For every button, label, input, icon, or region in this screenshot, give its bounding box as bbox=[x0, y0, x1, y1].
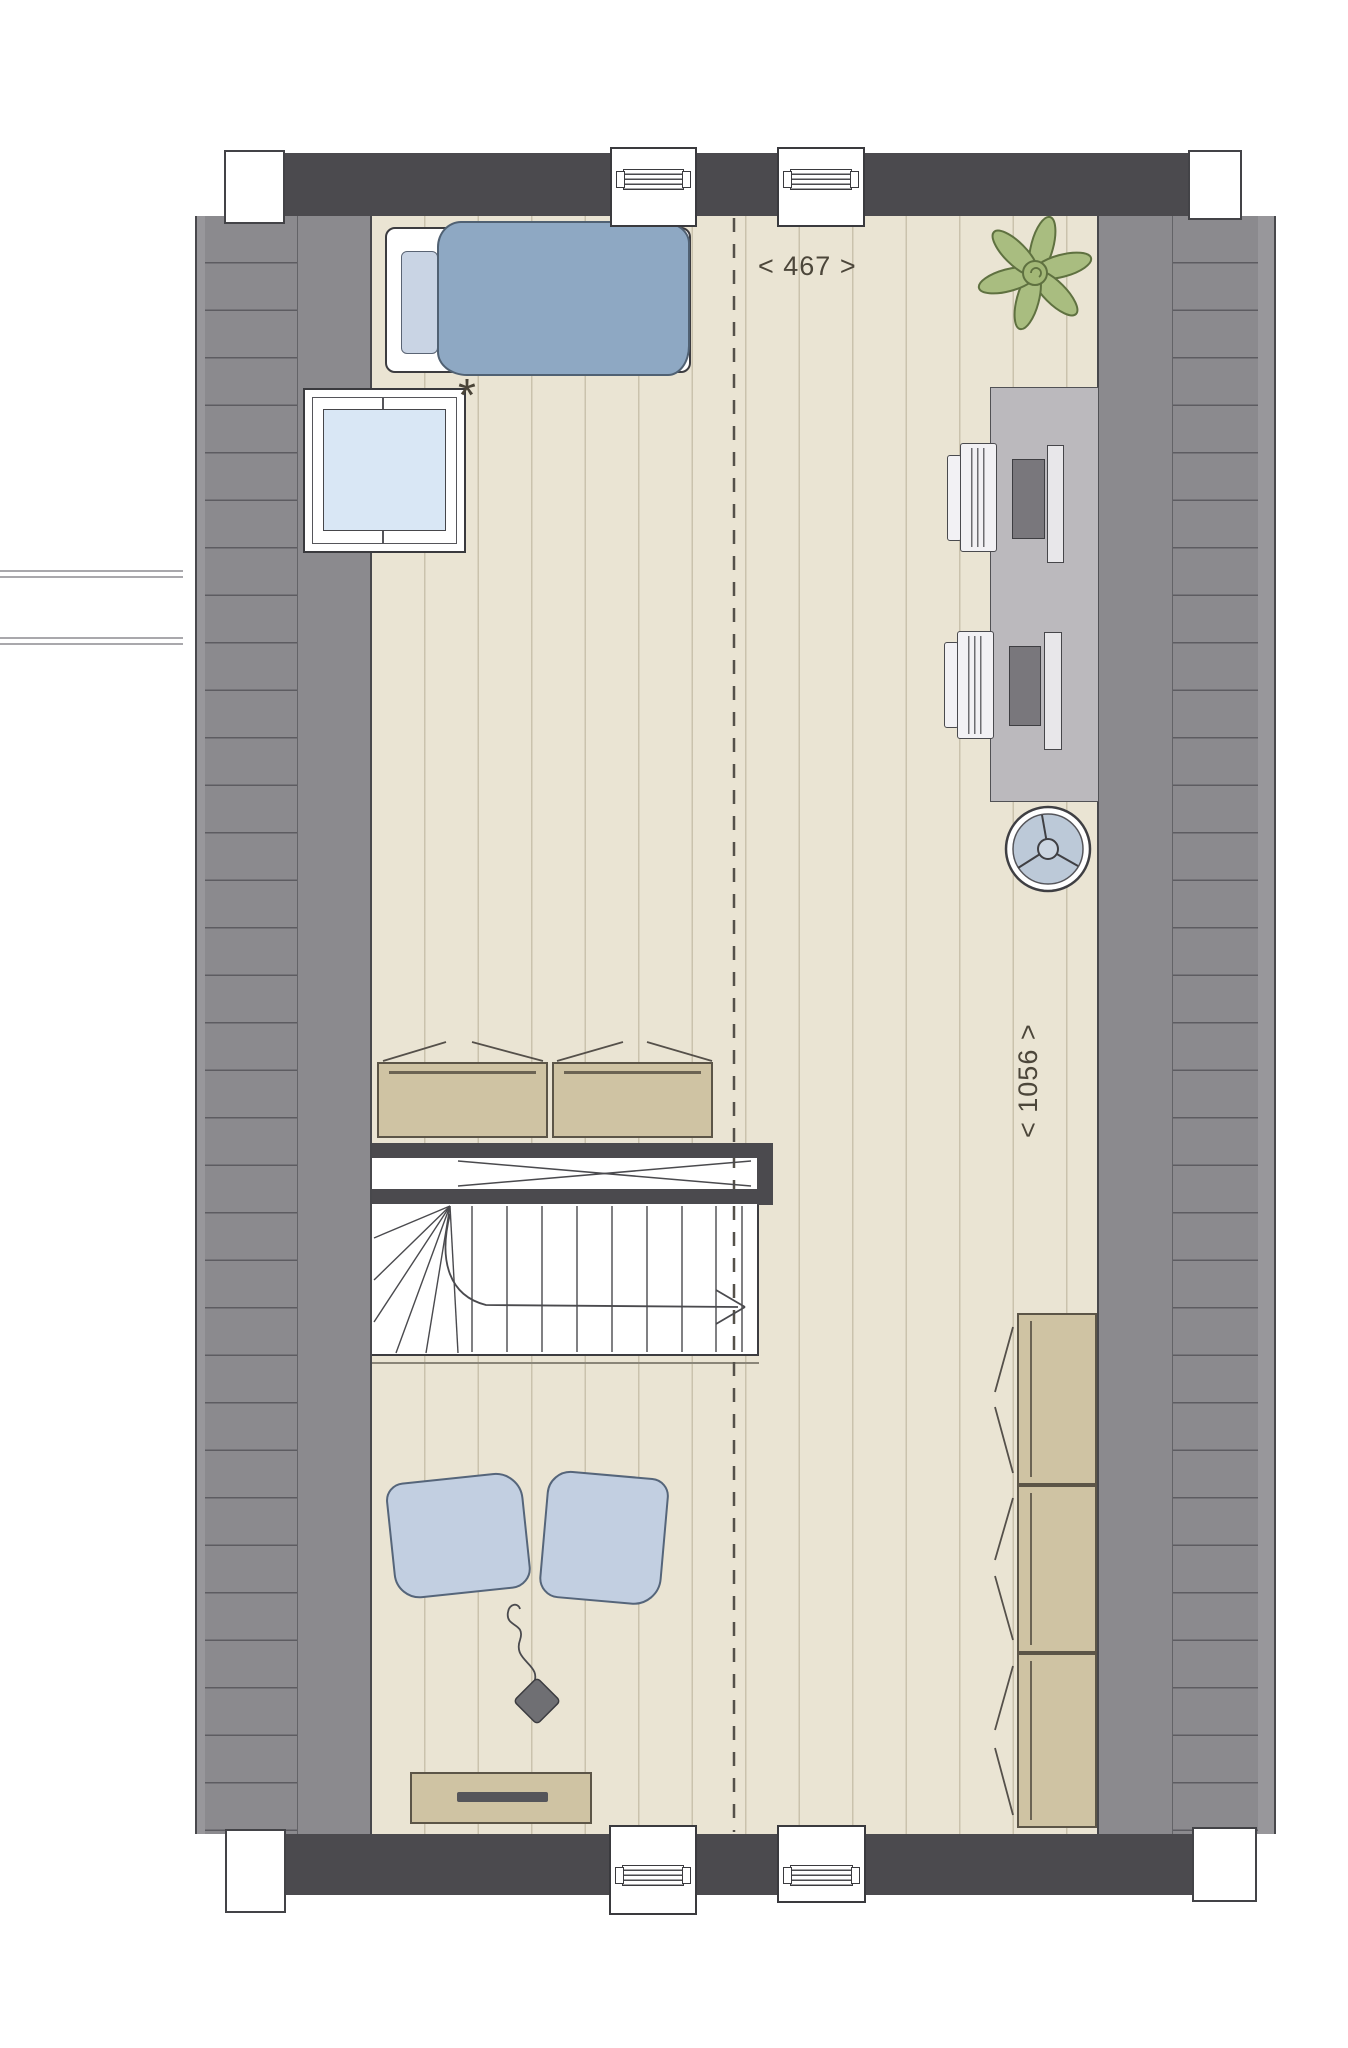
roof-window-tab bbox=[682, 171, 691, 188]
staircase-area bbox=[372, 1204, 759, 1356]
skylight-window bbox=[303, 388, 466, 553]
roof-window-tab bbox=[851, 1867, 860, 1884]
roof-window-tab bbox=[850, 171, 859, 188]
roof-window-tab bbox=[616, 171, 625, 188]
chimney-block bbox=[1192, 1827, 1257, 1902]
storage-cabinet bbox=[1017, 1313, 1097, 1485]
floor-plan-canvas: < 467 > < 1056 > * bbox=[0, 0, 1348, 2048]
roof-window-bottom bbox=[777, 1825, 866, 1903]
length-dimension-label: < 1056 > bbox=[1013, 1026, 1043, 1138]
skylight-footnote-asterisk: * bbox=[458, 372, 476, 418]
sideboard-handle bbox=[457, 1792, 548, 1802]
cabinet-door-edge bbox=[1030, 1493, 1032, 1645]
chimney-block bbox=[225, 1829, 286, 1913]
stair-void-strip bbox=[372, 1158, 759, 1189]
desk-chair-seat bbox=[957, 631, 994, 739]
stair-enclosure-wall bbox=[372, 1143, 773, 1158]
roof-window-top bbox=[777, 147, 865, 227]
floor-cushion bbox=[384, 1470, 532, 1601]
stair-bottom-line bbox=[372, 1362, 759, 1364]
low-cabinet bbox=[552, 1062, 713, 1138]
roof-window-tab bbox=[783, 1867, 792, 1884]
stair-enclosure-wall bbox=[757, 1143, 773, 1205]
floor-cushion bbox=[538, 1469, 671, 1607]
cabinet-handle bbox=[389, 1071, 536, 1074]
roof-window-slats bbox=[622, 1865, 684, 1886]
neighbor-wall-line bbox=[0, 576, 183, 578]
roof-window-top bbox=[610, 147, 697, 227]
chair-slats bbox=[968, 636, 986, 734]
skylight-glass bbox=[323, 409, 446, 531]
neighbor-wall-line bbox=[0, 570, 183, 572]
storage-cabinet bbox=[1017, 1485, 1097, 1653]
right-roof-eave-edge bbox=[1258, 216, 1276, 1834]
left-roof-panels bbox=[205, 216, 297, 1834]
laptop bbox=[1012, 459, 1045, 539]
monitor bbox=[1047, 445, 1064, 563]
width-dimension-label: < 467 > bbox=[758, 251, 857, 282]
roof-window-tab bbox=[783, 171, 792, 188]
cabinet-door-edge bbox=[1030, 1661, 1032, 1820]
skylight-mullion bbox=[382, 531, 384, 544]
chair-slats bbox=[971, 448, 989, 547]
bottom-facade-wall bbox=[282, 1834, 1192, 1895]
right-roof-knee-zone bbox=[1097, 216, 1173, 1834]
cabinet-handle bbox=[564, 1071, 701, 1074]
roof-window-tab bbox=[615, 1867, 624, 1884]
roof-window-bottom bbox=[609, 1825, 697, 1915]
skylight-mullion bbox=[382, 397, 384, 409]
storage-cabinet bbox=[1017, 1653, 1097, 1828]
monitor bbox=[1044, 632, 1062, 750]
low-cabinet bbox=[377, 1062, 548, 1138]
laptop bbox=[1009, 646, 1041, 726]
chimney-block bbox=[224, 150, 285, 224]
bed-duvet bbox=[437, 221, 690, 376]
roof-window-tab bbox=[682, 1867, 691, 1884]
roof-window-slats bbox=[623, 169, 684, 190]
stair-enclosure-wall bbox=[372, 1189, 759, 1204]
right-roof-panels bbox=[1173, 216, 1258, 1834]
top-facade-wall bbox=[281, 153, 1188, 216]
bed-pillow bbox=[401, 251, 438, 354]
chimney-block bbox=[1188, 150, 1242, 220]
roof-window-slats bbox=[790, 169, 852, 190]
roof-window-slats bbox=[790, 1865, 853, 1886]
cabinet-door-edge bbox=[1030, 1321, 1032, 1477]
neighbor-wall-line bbox=[0, 643, 183, 645]
neighbor-wall-line bbox=[0, 637, 183, 639]
desk-chair-seat bbox=[960, 443, 997, 552]
